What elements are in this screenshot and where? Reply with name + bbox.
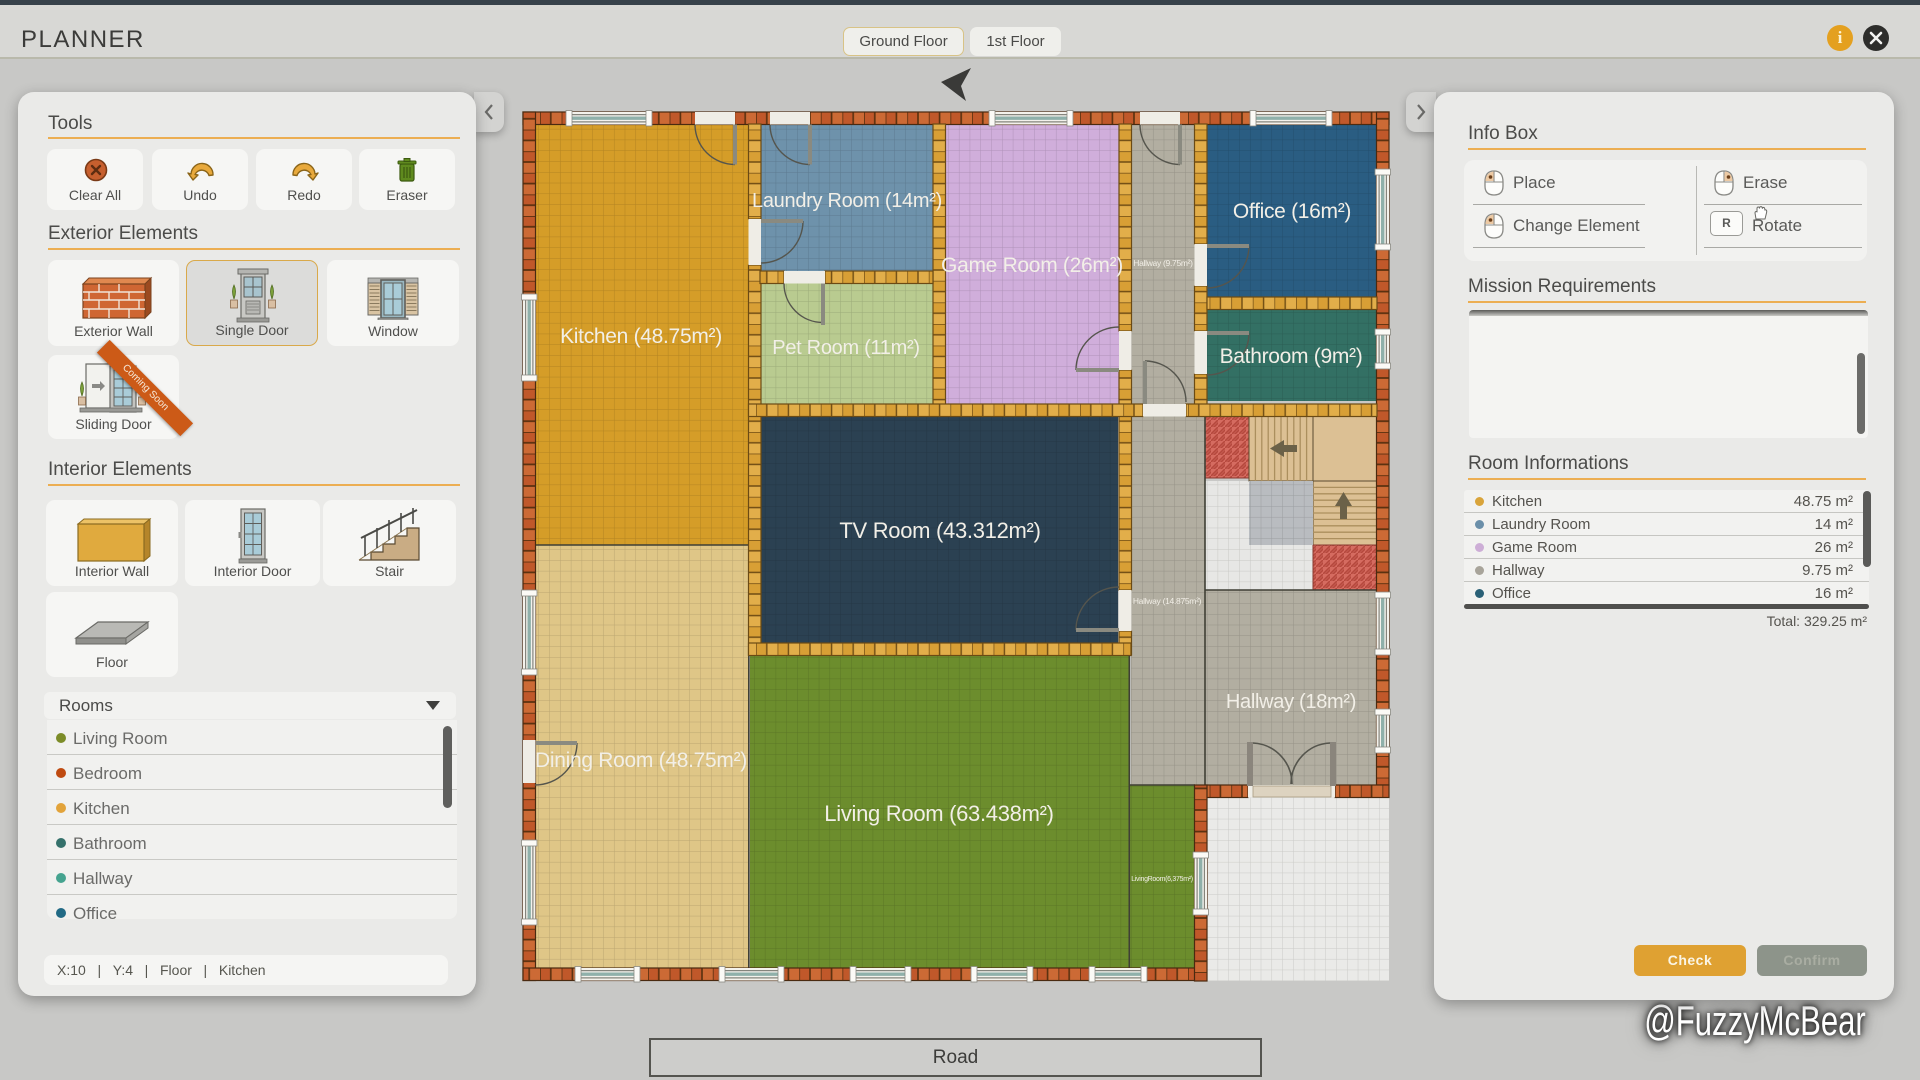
svg-text:Dining Room (48.75m²): Dining Room (48.75m²) <box>535 749 747 772</box>
svg-text:Hallway (9.75m²): Hallway (9.75m²) <box>1133 258 1193 268</box>
svg-text:TV Room (43.312m²): TV Room (43.312m²) <box>839 518 1040 543</box>
svg-text:Hallway (14.875m²): Hallway (14.875m²) <box>1133 596 1202 606</box>
svg-text:Living Room (63.438m²): Living Room (63.438m²) <box>824 801 1053 826</box>
svg-text:Kitchen (48.75m²): Kitchen (48.75m²) <box>560 325 722 348</box>
svg-text:Laundry Room (14m²): Laundry Room (14m²) <box>752 190 942 212</box>
svg-text:Office (16m²): Office (16m²) <box>1233 200 1351 223</box>
svg-text:Pet Room (11m²): Pet Room (11m²) <box>772 337 919 359</box>
svg-text:Bathroom (9m²): Bathroom (9m²) <box>1220 345 1363 368</box>
svg-text:LivingRoom(6,375m²): LivingRoom(6,375m²) <box>1131 876 1193 883</box>
svg-text:Game Room (26m²): Game Room (26m²) <box>941 254 1123 277</box>
svg-text:Hallway (18m²): Hallway (18m²) <box>1226 691 1356 713</box>
